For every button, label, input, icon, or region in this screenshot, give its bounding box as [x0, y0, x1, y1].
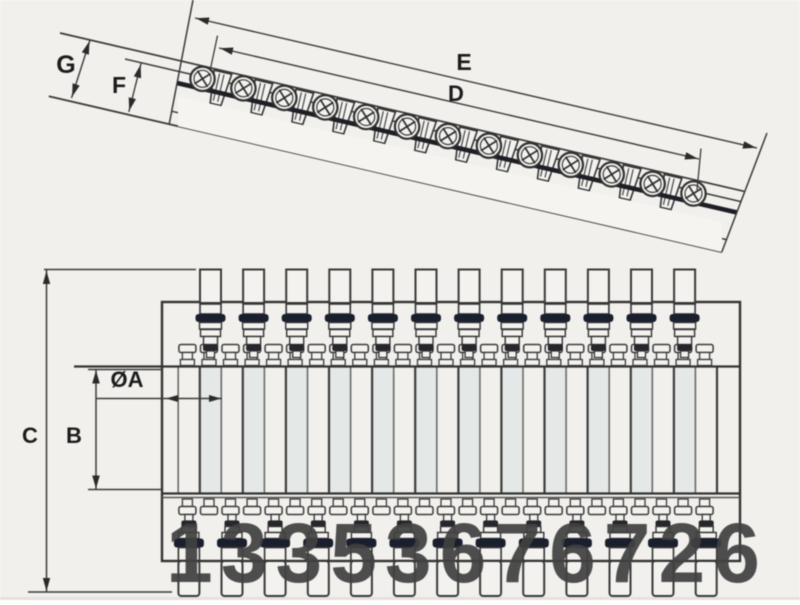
svg-text:F: F [112, 72, 126, 98]
svg-text:E: E [456, 49, 471, 75]
svg-text:G: G [56, 51, 75, 79]
svg-text:C: C [22, 423, 38, 448]
svg-text:ØA: ØA [111, 367, 144, 392]
svg-text:D: D [448, 81, 464, 106]
svg-text:B: B [66, 423, 82, 448]
svg-text:13353676726: 13353676726 [166, 506, 768, 600]
